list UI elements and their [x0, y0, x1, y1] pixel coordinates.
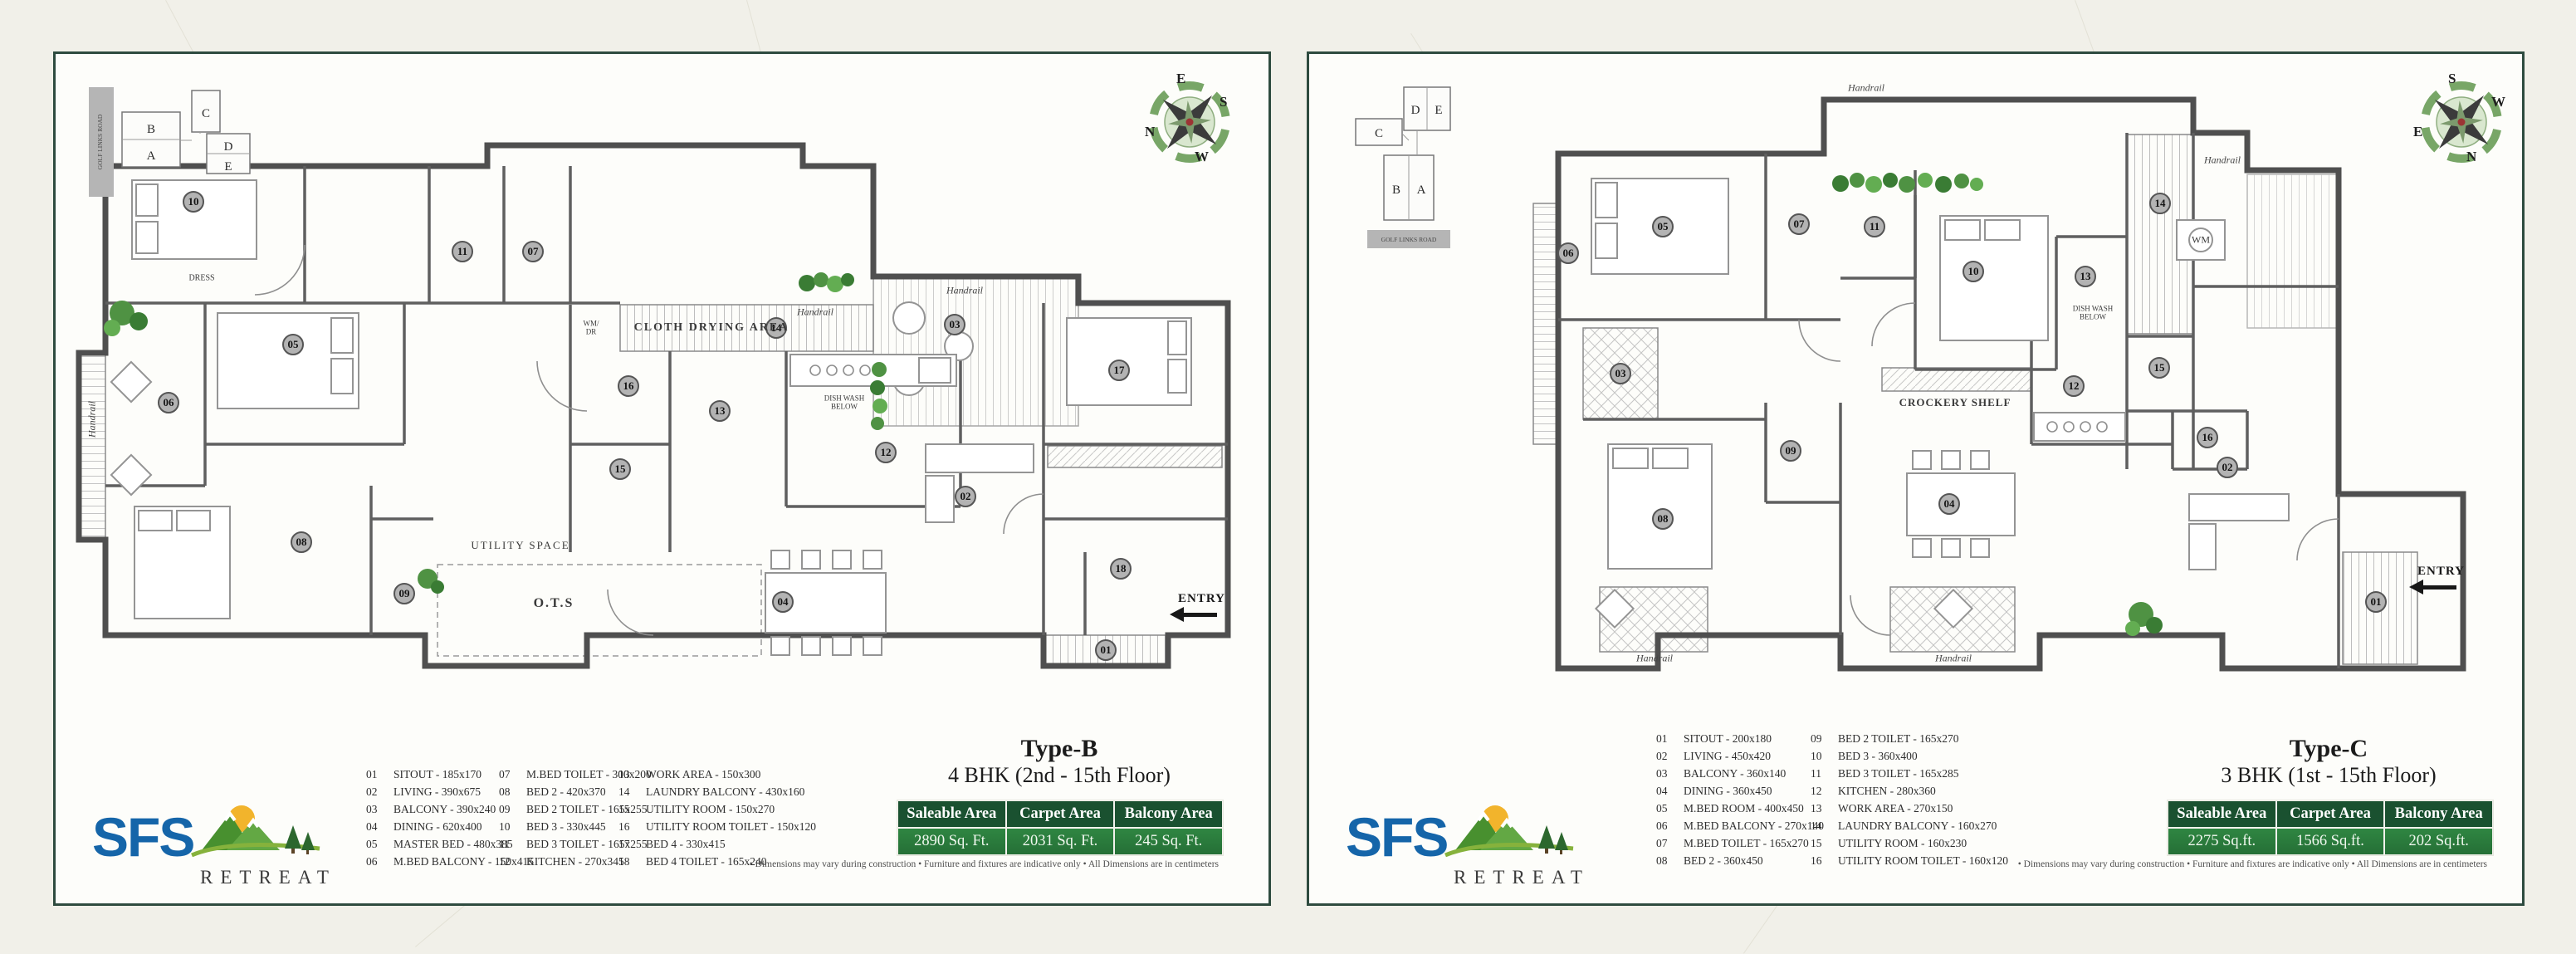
block-label: B — [147, 123, 155, 136]
room-number-marker: 02 — [955, 486, 976, 507]
legend-item: 11BED 3 TOILET - 165x285 — [1811, 765, 2008, 782]
room-number-marker: 15 — [2148, 357, 2170, 379]
handrail-label: Handrail — [86, 401, 99, 438]
room-number-marker: 07 — [1788, 213, 1810, 235]
table-value-cell: 1566 Sq.ft. — [2277, 829, 2384, 854]
legend-item: 13WORK AREA - 150x300 — [618, 766, 816, 783]
room-number-marker: 06 — [158, 392, 179, 413]
legend-item: 17BED 4 - 330x415 — [618, 835, 816, 853]
legend-item: 04DINING - 360x450 — [1656, 782, 1824, 800]
legend-item: 02LIVING - 450x420 — [1656, 747, 1824, 765]
compass-letter: S — [1220, 94, 1227, 110]
room-number-marker: 14 — [2149, 193, 2171, 214]
legend-item: 10BED 3 - 360x400 — [1811, 747, 2008, 765]
logo-mountain-art — [1444, 800, 1576, 867]
compass-letter: E — [1176, 71, 1185, 87]
block-label: D — [224, 140, 233, 154]
key-plan-type-b: GOLF LINKS ROAD B A C D E — [86, 82, 260, 211]
compass-rose: E S W N — [1140, 72, 1239, 172]
legend-column: 13WORK AREA - 150x300 14LAUNDRY BALCONY … — [618, 766, 816, 870]
handrail-label: Handrail — [797, 306, 833, 319]
handrail-label: Handrail — [946, 285, 983, 297]
compass-letter: W — [2491, 94, 2505, 110]
entry-label: ENTRY — [2417, 565, 2465, 579]
table-header-cell: Saleable Area — [2168, 801, 2275, 827]
sfs-retreat-logo: SFS RETREAT — [92, 804, 349, 897]
table-header-cell: Carpet Area — [1007, 801, 1114, 827]
room-number-marker: 10 — [183, 191, 204, 213]
wm-label: WM — [2192, 234, 2210, 247]
legend-item: 03BALCONY - 360x140 — [1656, 765, 1824, 782]
legend-item: 06M.BED BALCONY - 270x140 — [1656, 817, 1824, 834]
legend-item: 01SITOUT - 200x180 — [1656, 730, 1824, 747]
table-header-cell: Balcony Area — [1115, 801, 1222, 827]
legend-item: 09BED 2 TOILET - 165x270 — [1811, 730, 2008, 747]
room-number-marker: 11 — [452, 241, 473, 262]
area-table: Saleable Area Carpet Area Balcony Area 2… — [897, 800, 1224, 856]
room-number-marker: 17 — [1108, 360, 1130, 381]
entry-arrow: ENTRY — [1170, 592, 1225, 622]
dish-wash-label: DISH WASH BELOW — [818, 394, 871, 412]
legend-item: 12KITCHEN - 280x360 — [1811, 782, 2008, 800]
room-number-marker: 13 — [2075, 266, 2096, 287]
table-value-cell: 2275 Sq.ft. — [2168, 829, 2275, 854]
room-number-marker: 01 — [1095, 639, 1117, 661]
legend-item: 05M.BED ROOM - 400x450 — [1656, 800, 1824, 817]
room-number-marker: 02 — [2217, 457, 2238, 478]
table-value-cell: 245 Sq. Ft. — [1115, 829, 1222, 854]
unit-type-title: Type-C — [2154, 735, 2503, 763]
legend-item: 14LAUNDRY BALCONY - 430x160 — [618, 783, 816, 800]
block-label: D — [1411, 104, 1420, 117]
dress-label: DRESS — [188, 274, 214, 283]
compass-letter: N — [2466, 149, 2476, 165]
room-number-marker: 04 — [1938, 493, 1960, 515]
room-number-marker: 12 — [875, 442, 897, 463]
room-number-marker: 11 — [1864, 216, 1885, 237]
unit-type-subtitle: 3 BHK (1st - 15th Floor) — [2154, 763, 2503, 788]
utility-space-label: UTILITY SPACE — [471, 539, 569, 552]
room-number-marker: 16 — [618, 375, 639, 397]
room-number-marker: 04 — [772, 591, 794, 613]
crockery-shelf-label: CROCKERY SHELF — [1899, 396, 2011, 409]
table-header-cell: Saleable Area — [898, 801, 1005, 827]
area-table: Saleable Area Carpet Area Balcony Area 2… — [2167, 800, 2494, 856]
handrail-label: Handrail — [1848, 82, 1884, 95]
block-label: E — [224, 160, 232, 174]
legend-column: 01SITOUT - 200x180 02LIVING - 450x420 03… — [1656, 730, 1824, 869]
room-number-marker: 07 — [522, 241, 544, 262]
cloth-drying-area-label: CLOTH DRYING AREA — [634, 321, 789, 335]
room-number-marker: 08 — [1652, 508, 1674, 530]
legend-item: 16UTILITY ROOM TOILET - 160x120 — [1811, 852, 2008, 869]
compass-letter: E — [2413, 124, 2422, 140]
legend-column: 09BED 2 TOILET - 165x270 10BED 3 - 360x4… — [1811, 730, 2008, 869]
logo-sfs-text: SFS — [92, 805, 193, 868]
handrail-label: Handrail — [1636, 653, 1673, 665]
brochure-panel-type-c: GOLF LINKS ROAD D E C B A S W N E 01 02 … — [1307, 51, 2525, 906]
key-plan-type-c: GOLF LINKS ROAD D E C B A — [1334, 82, 1484, 265]
compass-letter: W — [1195, 149, 1209, 165]
room-number-marker: 10 — [1963, 261, 1984, 282]
block-label: A — [1417, 183, 1426, 197]
ots-label: O.T.S — [534, 596, 574, 611]
room-number-marker: 03 — [1610, 363, 1631, 384]
room-number-marker: 05 — [1652, 216, 1674, 237]
handrail-label: Handrail — [2204, 154, 2241, 167]
block-label: C — [202, 107, 210, 120]
brochure-panel-type-b: GOLF LINKS ROAD B A C D E E S W N — [53, 51, 1271, 906]
logo-retreat-text: RETREAT — [200, 867, 336, 888]
table-value-cell: 2031 Sq. Ft. — [1007, 829, 1114, 854]
table-header-cell: Carpet Area — [2277, 801, 2384, 827]
compass-letter: N — [1145, 124, 1155, 140]
block-label: C — [1375, 127, 1383, 140]
room-number-marker: 18 — [1110, 558, 1132, 580]
sfs-retreat-logo: SFS RETREAT — [1346, 804, 1603, 897]
table-value-cell: 202 Sq.ft. — [2385, 829, 2492, 854]
room-number-marker: 16 — [2197, 427, 2218, 448]
room-number-marker: 01 — [2365, 591, 2387, 613]
road-label: GOLF LINKS ROAD — [1381, 236, 1437, 243]
dish-wash-label: DISH WASH BELOW — [2066, 305, 2119, 322]
room-number-marker: 06 — [1557, 242, 1579, 264]
room-number-marker: 05 — [282, 334, 304, 355]
entry-arrow: ENTRY — [2409, 565, 2465, 594]
legend-item: 15UTILITY ROOM - 150x270 — [618, 800, 816, 818]
legend-item: 14LAUNDRY BALCONY - 160x270 — [1811, 817, 2008, 834]
block-label: B — [1392, 183, 1400, 197]
compass-letter: S — [2448, 71, 2456, 87]
legend-item: 07M.BED TOILET - 165x270 — [1656, 834, 1824, 852]
block-label: E — [1435, 104, 1442, 117]
room-number-marker: 15 — [609, 458, 631, 480]
legend-item: 15UTILITY ROOM - 160x230 — [1811, 834, 2008, 852]
entry-label: ENTRY — [1178, 592, 1225, 606]
room-number-marker: 03 — [944, 314, 965, 335]
room-number-marker: 09 — [393, 583, 415, 604]
legend-item: 13WORK AREA - 270x150 — [1811, 800, 2008, 817]
compass-rose: S W N E — [2412, 72, 2511, 172]
handrail-label: Handrail — [1935, 653, 1972, 665]
legend-item: 16UTILITY ROOM TOILET - 150x120 — [618, 818, 816, 835]
room-number-marker: 09 — [1780, 440, 1801, 462]
logo-sfs-text: SFS — [1346, 805, 1447, 868]
unit-type-subtitle: 4 BHK (2nd - 15th Floor) — [885, 763, 1234, 788]
unit-type-title: Type-B — [885, 735, 1234, 763]
logo-mountain-art — [190, 800, 323, 867]
legend-item: 08BED 2 - 360x450 — [1656, 852, 1824, 869]
table-header-cell: Balcony Area — [2385, 801, 2492, 827]
disclaimer-text: • Dimensions may vary during constructio… — [750, 859, 1219, 869]
room-number-marker: 08 — [291, 531, 312, 553]
block-label: A — [147, 149, 156, 163]
table-value-cell: 2890 Sq. Ft. — [898, 829, 1005, 854]
room-number-marker: 13 — [709, 400, 731, 422]
room-number-marker: 12 — [2063, 375, 2085, 397]
logo-retreat-text: RETREAT — [1454, 867, 1590, 888]
disclaimer-text: • Dimensions may vary during constructio… — [2018, 859, 2487, 869]
road-label: GOLF LINKS ROAD — [96, 114, 104, 169]
wm-dr-label: WM/ DR — [578, 320, 604, 337]
